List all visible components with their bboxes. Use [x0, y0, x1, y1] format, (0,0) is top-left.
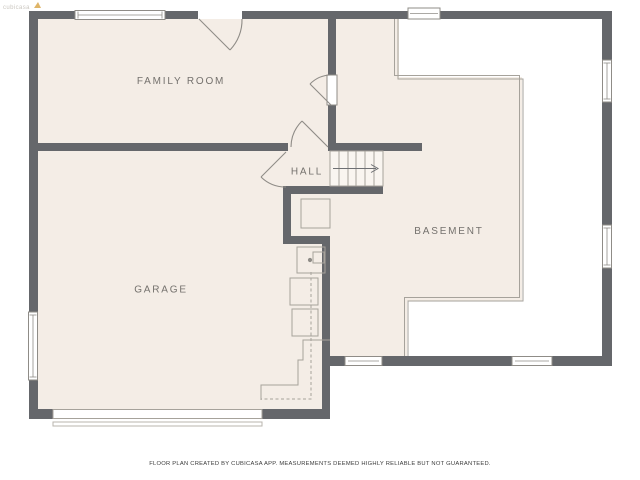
door-opening-familyroom-basement: [327, 75, 337, 105]
unfinished-area-right: [522, 77, 602, 301]
room-label-hall: HALL: [291, 167, 323, 178]
window: [75, 11, 165, 20]
watermark-text: cubicasa: [3, 5, 30, 11]
floor-plan-canvas: FAMILY ROOM HALL BASEMENT GARAGE cubicas…: [0, 0, 640, 480]
garage-door-panel: [53, 422, 262, 426]
door-opening-familyroom-top: [198, 11, 242, 19]
unfinished-area-top: [399, 19, 602, 77]
unfinished-area-bottom: [407, 301, 602, 356]
window: [345, 357, 382, 366]
wall-stairs-bottom: [283, 186, 383, 194]
window: [603, 60, 612, 102]
door-opening-familyroom-hall: [291, 143, 328, 151]
room-label-garage: GARAGE: [134, 285, 188, 296]
floor-plan-page: FAMILY ROOM HALL BASEMENT GARAGE cubicas…: [0, 0, 640, 480]
room-label-family-room: FAMILY ROOM: [137, 76, 225, 87]
wall-familyroom-garage: [38, 143, 288, 151]
window: [408, 8, 440, 19]
wall-hall-top: [328, 143, 422, 151]
window: [512, 357, 552, 366]
room-label-basement: BASEMENT: [414, 226, 483, 237]
garage-door-opening: [53, 410, 262, 419]
stairs: [330, 151, 383, 186]
wall-hall-left: [283, 186, 291, 244]
window: [29, 312, 38, 380]
window: [603, 225, 612, 268]
footer-disclaimer: FLOOR PLAN CREATED BY CUBICASA APP. MEAS…: [149, 461, 491, 467]
garage-door: [53, 410, 262, 427]
